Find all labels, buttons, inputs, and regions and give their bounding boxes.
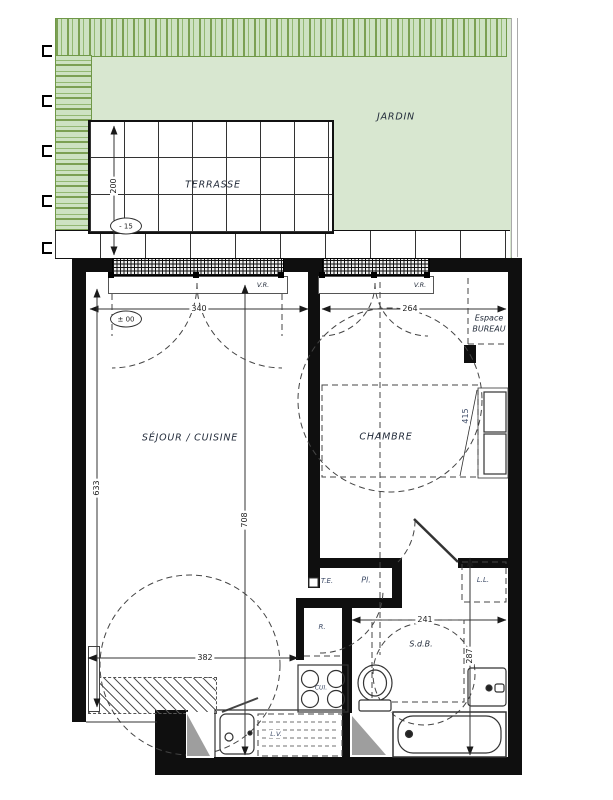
label-espace-bureau-1: Espace xyxy=(475,314,504,323)
label-pl: Pl. xyxy=(361,576,371,585)
dim-200: 200 xyxy=(110,176,118,195)
label-cui: CUI. xyxy=(315,685,327,692)
label-vr-chambre: V.R. xyxy=(414,281,426,289)
label-terrasse: TERRASSE xyxy=(185,180,241,191)
label-ll: L.L. xyxy=(477,576,489,584)
label-sdb: S.d.B. xyxy=(407,640,434,649)
label-vr-sejour: V.R. xyxy=(257,281,269,289)
dim-382: 382 xyxy=(195,654,214,662)
dim-264: 264 xyxy=(400,305,419,313)
floor-plan: JARDIN TERRASSE SÉJOUR / CUISINE CHAMBRE… xyxy=(0,0,613,800)
label-te: T.E. xyxy=(321,577,333,585)
wardrobe xyxy=(478,388,508,478)
dim-241: 241 xyxy=(415,616,434,624)
dim-633: 633 xyxy=(93,478,101,497)
label-chambre: CHAMBRE xyxy=(359,432,412,443)
label-espace-bureau-2: BUREAU xyxy=(472,325,505,334)
level-marker-terrasse: - 15 xyxy=(110,218,142,235)
fixtures xyxy=(86,272,508,757)
dim-708: 708 xyxy=(241,510,249,529)
level-marker-interieur: ± 00 xyxy=(110,311,142,328)
dim-415: 415 xyxy=(462,406,470,425)
label-r: R. xyxy=(318,623,325,631)
label-sejour-cuisine: SÉJOUR / CUISINE xyxy=(142,433,238,444)
dim-340: 340 xyxy=(189,305,208,313)
plan-linework xyxy=(0,0,613,800)
label-jardin: JARDIN xyxy=(377,112,415,123)
dim-287: 287 xyxy=(466,646,474,665)
label-lv: L.V. xyxy=(269,730,282,738)
